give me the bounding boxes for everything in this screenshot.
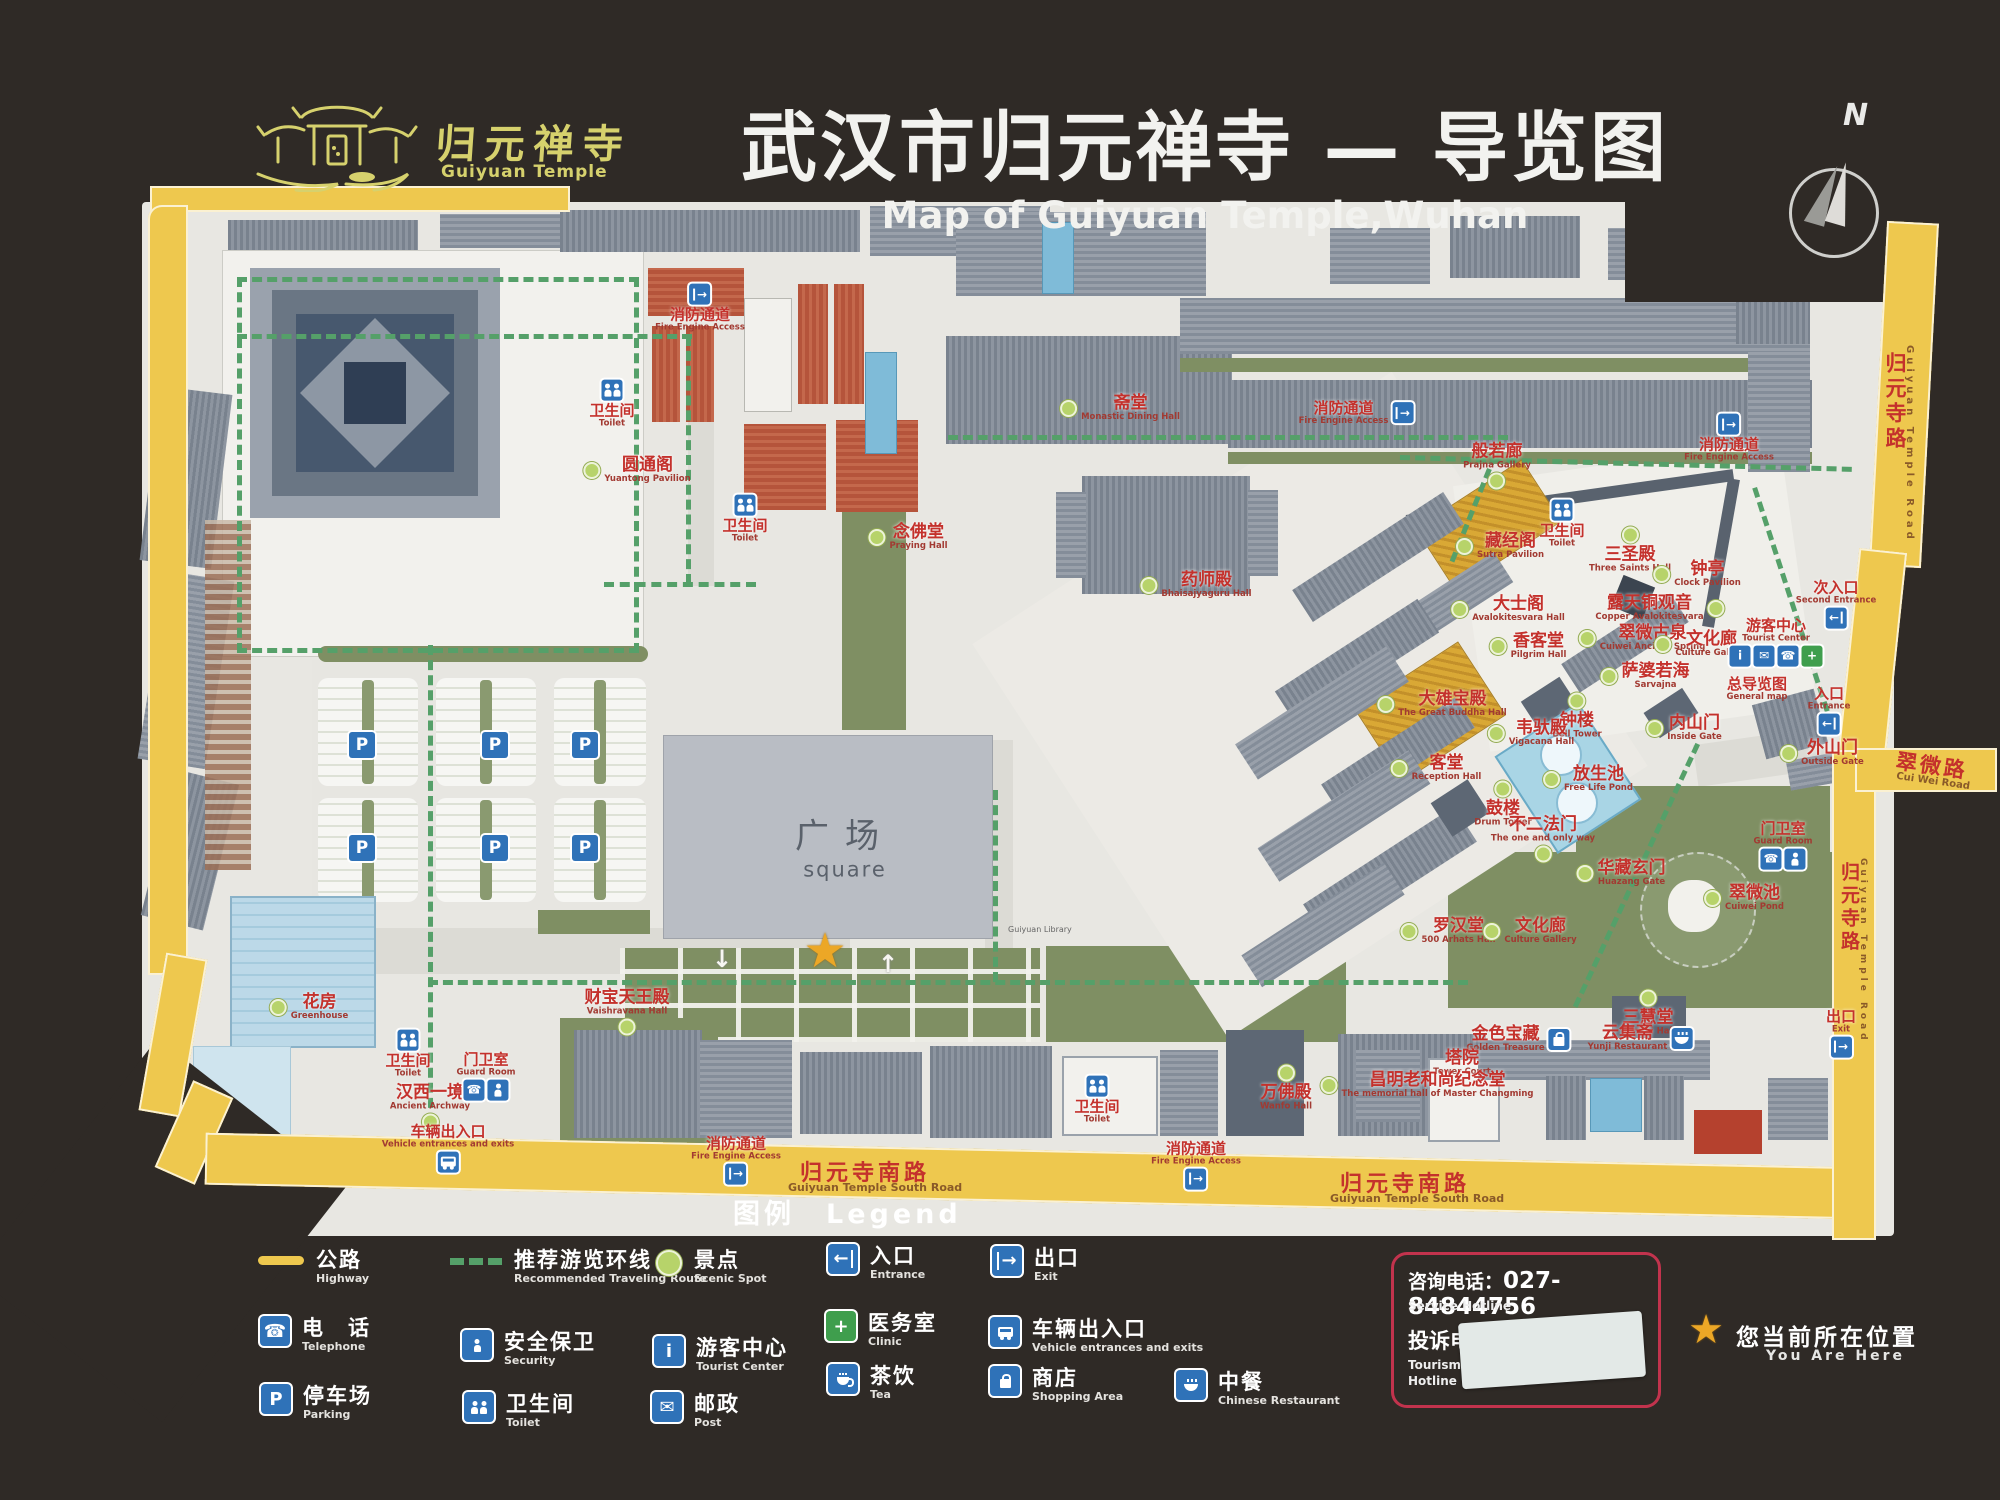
map-shape: 卫生间 (589, 403, 634, 420)
scenic-spot-label: 放生池Free Life Pond (1543, 765, 1633, 793)
parking-sign: P (349, 835, 375, 861)
map-shape: The one and only way (1491, 834, 1595, 843)
map-shape (328, 136, 346, 164)
facility-label: 车辆出入口Vehicle entrances and exits (382, 1124, 514, 1173)
scenic-spot-label: 云集斋Yunji Restaurant (1588, 1024, 1693, 1052)
exit-icon: → (690, 284, 711, 305)
map-shape: 车辆出入口 (410, 1124, 485, 1141)
map-shape: 金色宝藏 (1472, 1025, 1540, 1044)
map-shape: 茶饮 (870, 1364, 916, 1388)
map-shape: 图例 (733, 1199, 795, 1230)
map-shape (293, 108, 300, 117)
map-shape: 邮政Post (694, 1392, 740, 1429)
scenic-spot-dot (1483, 923, 1500, 940)
legend-item: 公路Highway (258, 1248, 369, 1285)
map-building (560, 210, 860, 252)
scenic-spot-dot (1488, 725, 1505, 742)
bus-icon (437, 1151, 458, 1172)
map-shape: Toilet (395, 1069, 421, 1078)
map-shape: 卫生间Toilet (722, 518, 767, 544)
map-shape: i✉☎+ (1730, 645, 1823, 666)
legend-item: 商店Shopping Area (990, 1366, 1123, 1403)
map-shape: ← (833, 1250, 852, 1268)
map-shape: The Great Buddha Hall (1398, 709, 1506, 718)
map-shape: Avalokitesvara Hall (1472, 614, 1565, 623)
scenic-spot-dot (1495, 780, 1512, 797)
map-shape: Sarvajna (1634, 681, 1676, 690)
legend-item: P停车场Parking (261, 1384, 372, 1421)
map-shape (495, 1083, 502, 1096)
scenic-spot-label: 萨婆若海Sarvajna (1601, 662, 1690, 690)
legend-item: 景点Scenic Spot (656, 1248, 766, 1285)
toilet-icon (601, 380, 622, 401)
map-shape: Culture Gallery (1504, 936, 1576, 945)
parking-icon: P (349, 732, 375, 758)
parking-sign: P (349, 732, 375, 758)
scenic-spot-dot (868, 529, 885, 546)
page-title: 武汉市归元禅寺 — 导览图 (740, 86, 1670, 196)
map-shape: square (795, 858, 895, 882)
compass-icon (1789, 168, 1879, 258)
map-building (744, 298, 792, 412)
map-shape: 萨婆若海Sarvajna (1622, 662, 1690, 690)
map-shape: 电 话Telephone (302, 1316, 371, 1353)
you-are-here-zh: 您当前所在位置 (1736, 1318, 1918, 1352)
map-shape: 韦驮殿Vigacana Hall (1509, 719, 1574, 747)
map-building (1694, 1110, 1762, 1154)
facility-label: 门卫室Guard Room☎ (1753, 821, 1812, 870)
entrance-icon: ← (1819, 713, 1840, 734)
road-label-en: Guiyuan Temple South Road (1330, 1192, 1504, 1205)
post-icon: ✉ (1754, 645, 1775, 666)
parking-icon: P (261, 1384, 291, 1414)
map-building (1768, 1078, 1828, 1140)
map-shape: 卫生间 (1074, 1099, 1119, 1116)
map-shape (471, 1401, 487, 1414)
map-building (798, 284, 828, 404)
map-shape: 卫生间Toilet (1539, 523, 1584, 549)
security-icon (462, 1330, 492, 1360)
exit-icon: → (1392, 403, 1413, 424)
map-shape: 安全保卫 (504, 1330, 596, 1354)
map-shape: Guard Room (456, 1068, 515, 1077)
temple-gate-logo-icon (250, 90, 422, 192)
map-shape: 邮政 (694, 1392, 740, 1416)
scenic-spot-label: 斋堂Monastic Dining Hall (1060, 394, 1180, 422)
map-shape: Exit (1832, 1025, 1850, 1034)
map-shape: 外山门 (1807, 739, 1858, 758)
map-shape: 茶饮Tea (870, 1364, 916, 1401)
scenic-spot-label: 罗汉堂500 Arhats Hall (1400, 917, 1495, 945)
map-shape: Second Entrance (1796, 596, 1877, 605)
scenic-spot-dot (1704, 890, 1721, 907)
map-shape: Outside Gate (1801, 758, 1864, 767)
scenic-spot-dot (1451, 601, 1468, 618)
map-shape (601, 380, 622, 401)
map-shape: 消防通道Fire Engine Access (691, 1136, 781, 1162)
map-shape (1184, 1384, 1198, 1391)
scenic-spot-dot (1568, 692, 1585, 709)
map-shape: 万佛殿Wanfo Hall (1260, 1083, 1312, 1111)
map-shape: 放生池 (1573, 765, 1624, 784)
map-shape (1554, 504, 1561, 517)
scenic-spot-label: 露天铜观音Copper Avalokitesvara (1595, 594, 1724, 622)
entrance-icon: ← (828, 1244, 858, 1274)
facility-label: 卫生间Toilet (385, 1030, 430, 1079)
map-shape: 景点Scenic Spot (694, 1248, 766, 1285)
map-building (1546, 1076, 1586, 1140)
map-shape: 车辆出入口Vehicle entrances and exits (1032, 1317, 1203, 1354)
bus-icon (990, 1317, 1020, 1347)
fire-access-label: →消防通道Fire Engine Access (655, 284, 745, 333)
map-shape: 安全保卫Security (504, 1330, 596, 1367)
map-shape: → (693, 288, 707, 300)
map-shape: 般若廊 (1471, 442, 1522, 461)
map-shape: 出口 (1826, 1009, 1856, 1026)
scenic-spot-dot (1277, 1064, 1294, 1081)
you-are-here-star-legend: ★ (1688, 1307, 1724, 1353)
map-shape: → (1396, 407, 1410, 419)
map-shape: → (1834, 1041, 1848, 1053)
map-shape (397, 1030, 418, 1051)
map-shape: 出口Exit (1034, 1246, 1080, 1283)
scenic-spot-dot (1534, 846, 1551, 863)
map-shape: Free Life Pond (1564, 784, 1633, 793)
map-shape: 咨询电话： (1408, 1271, 1503, 1293)
map-shape: Toilet (1084, 1115, 1110, 1124)
map-shape: ← (1825, 607, 1846, 628)
map-shape: 萨婆若海 (1622, 662, 1690, 681)
map-building (652, 326, 680, 422)
phone-icon: ☎ (260, 1316, 290, 1346)
legend-item: 中餐Chinese Restaurant (1176, 1370, 1340, 1407)
facility-label: 卫生间Toilet (589, 380, 634, 429)
map-shape: ☎ (1761, 848, 1806, 869)
map-shape: 入口 (870, 1244, 925, 1268)
map-shape: Tourist Center (696, 1360, 788, 1373)
map-shape (410, 127, 416, 135)
map-shape (480, 1401, 487, 1414)
map-shape: → (1189, 1173, 1203, 1185)
map-shape: Sutra Pavilion (1477, 551, 1544, 560)
map-shape: 次入口 (1813, 580, 1858, 597)
fire-access-label: 消防通道Fire Engine Access→ (1151, 1141, 1241, 1190)
map-shape: Toilet (732, 534, 758, 543)
map-shape: Vaishravana Hall (587, 1007, 668, 1016)
scenic-spot-dot (1646, 720, 1663, 737)
map-shape (266, 127, 304, 134)
map-shape: Reception Hall (1412, 773, 1482, 782)
parking-icon: P (349, 835, 375, 861)
phone-icon: ☎ (464, 1079, 485, 1100)
map-shape: 斋堂Monastic Dining Hall (1081, 394, 1180, 422)
map-shape (437, 1151, 458, 1172)
highway-icon (258, 1256, 304, 1265)
map-shape: Post (694, 1416, 740, 1429)
map-shape: 车辆出入口 (1032, 1317, 1203, 1341)
map-shape (998, 1327, 1013, 1337)
scenic-spot-dot (1654, 636, 1671, 653)
scenic-spot-label: 财宝天王殿Vaishravana Hall (585, 988, 670, 1035)
toilet-icon (1086, 1076, 1107, 1097)
legend-item: →出口Exit (992, 1246, 1080, 1283)
facility-label: 次入口Second Entrance← (1796, 580, 1877, 629)
map-shape: Inside Gate (1667, 733, 1722, 742)
road-right (1832, 750, 1876, 1240)
map-shape: 入口Entrance (870, 1244, 925, 1281)
map-shape (349, 172, 375, 182)
map-shape: Greenhouse (291, 1012, 349, 1021)
map-shape: 次入口Second Entrance (1796, 580, 1877, 606)
map-building (1248, 490, 1278, 576)
map-shape: 华藏玄门 (1598, 859, 1666, 878)
you-are-here-en: You Are Here (1766, 1348, 1905, 1364)
map-shape (1675, 1037, 1689, 1044)
legend-item: 茶饮Tea (828, 1364, 916, 1401)
map-shape: 出口 (1034, 1246, 1080, 1270)
map-shape: 消防通道 (1313, 400, 1373, 417)
map-shape: Security (504, 1354, 596, 1367)
map-shape: 花房 (303, 993, 337, 1012)
map-shape: Entrance (870, 1268, 925, 1281)
scenic-spot-label: 翠微池Cuiwei Pond (1704, 884, 1784, 912)
map-shape: 翠微池 (1729, 884, 1780, 903)
map-shape: 华藏玄门Huazang Gate (1598, 859, 1666, 887)
map-building (228, 220, 418, 250)
map-shape: Parking (303, 1408, 372, 1421)
map-shape: ← (1829, 612, 1843, 624)
map-shape: 昌明老和尚纪念堂 (1369, 1071, 1505, 1090)
exit-icon: → (726, 1163, 747, 1184)
map-shape: 圆通阁Yuantong Pavilion (604, 456, 690, 484)
map-shape: 云集斋Yunji Restaurant (1588, 1024, 1668, 1052)
path-arrow-up: ↑ (878, 950, 898, 978)
parking-sign: P (482, 732, 508, 758)
map-shape: 卫生间 (722, 518, 767, 535)
map-shape (302, 107, 372, 117)
map-shape: 停车场Parking (303, 1384, 372, 1421)
map-shape (400, 1034, 416, 1047)
scenic-spot-dot (1060, 400, 1077, 417)
map-shape: 广场 (795, 809, 895, 858)
scenic-spot-dot (1321, 1077, 1338, 1094)
map-shape (734, 495, 755, 516)
map-shape: Toilet (1549, 539, 1575, 548)
map-shape: 总导览图 (1727, 676, 1787, 693)
map-shape (1089, 1080, 1105, 1093)
map-shape: 消防通道 (706, 1136, 766, 1153)
scenic-spot-dot (1140, 577, 1157, 594)
map-shape: 医务室Clinic (868, 1311, 937, 1348)
facility-label: 出口Exit→ (1826, 1009, 1856, 1058)
map-shape: 念佛堂 (893, 523, 944, 542)
map-shape: 藏经阁Sutra Pavilion (1477, 532, 1544, 560)
map-shape: 卫生间Toilet (1074, 1099, 1119, 1125)
map-shape: Highway (316, 1272, 369, 1285)
fire-access-label: 消防通道Fire Engine Access→ (691, 1136, 781, 1185)
map-shape: Scenic Spot (694, 1272, 766, 1285)
facility-label: 总导览图General map (1726, 676, 1787, 702)
map-shape: 入口 (1814, 686, 1844, 703)
legend-item: ☎电 话Telephone (260, 1316, 371, 1353)
scenic-spot-dot (1400, 923, 1417, 940)
path-arrow-down: ↓ (712, 945, 732, 973)
scenic-spot-dot (1601, 668, 1618, 685)
map-building (865, 352, 897, 454)
map-shape: 云集斋 (1602, 1024, 1653, 1043)
map-shape: Cuiwei Pond (1725, 903, 1784, 912)
map-shape (1554, 504, 1570, 517)
map-shape: Exit (1034, 1270, 1080, 1283)
scenic-spot-label: 不二法门The one and only way (1491, 815, 1595, 862)
map-building (700, 1040, 792, 1138)
scenic-spot-dot (270, 999, 287, 1016)
scenic-spot-label: 万佛殿Wanfo Hall (1260, 1064, 1312, 1111)
map-shape: ← (1822, 718, 1836, 730)
map-shape (613, 384, 620, 397)
map-shape (258, 174, 338, 191)
map-shape: The memorial hall of Master Changming (1342, 1090, 1534, 1099)
road-highway (148, 205, 188, 975)
map-shape (1792, 852, 1799, 865)
map-shape (258, 127, 264, 135)
map-shape: 罗汉堂 (1433, 917, 1484, 936)
map-shape: 药师殿 (1181, 571, 1232, 590)
map-shape (837, 1377, 849, 1385)
scenic-spot-label: 华藏玄门Huazang Gate (1577, 859, 1666, 887)
compass-n-label: N (1843, 98, 1868, 133)
toilet-icon (464, 1392, 494, 1422)
map-shape: 门卫室Guard Room (456, 1052, 515, 1078)
scenic-spot-dot (1653, 566, 1670, 583)
fire-access-label: →消防通道Fire Engine Access (1684, 414, 1774, 463)
map-shape: 消防通道Fire Engine Access (1151, 1141, 1241, 1167)
map-shape: Yunji Restaurant (1588, 1043, 1668, 1052)
scenic-spot-dot (1488, 473, 1505, 490)
scenic-spot-dot (1543, 771, 1560, 788)
scenic-spot-dot (1577, 865, 1594, 882)
scenic-spot-dot (1456, 538, 1473, 555)
map-shape: Vehicle entrances and exits (382, 1140, 514, 1149)
scenic-spot-label: 文化廊Culture Gallery (1483, 917, 1576, 945)
phone-icon: ☎ (1761, 848, 1782, 869)
map-shape (1098, 1080, 1105, 1093)
map-shape: 外山门Outside Gate (1801, 739, 1864, 767)
map-shape: 三圣殿 (1605, 545, 1656, 564)
map-shape: 露天铜观音Copper Avalokitesvara (1595, 594, 1703, 622)
map-shape: 钟亭 (1691, 560, 1725, 579)
map-shape: ← (1819, 713, 1840, 734)
toilet-icon (1551, 500, 1572, 521)
scenic-spot-label: 客堂Reception Hall (1391, 754, 1482, 782)
map-shape: → (1830, 1036, 1851, 1057)
restaurant-icon (1671, 1028, 1692, 1049)
page-subtitle: Map of Guiyuan Temple,Wuhan (860, 194, 1550, 237)
map-shape: 不二法门 (1509, 815, 1577, 834)
parking-sign: P (572, 835, 598, 861)
scenic-spot-label: 昌明老和尚纪念堂The memorial hall of Master Chan… (1321, 1071, 1534, 1099)
scenic-spot-label: 药师殿Bhaisajyaguru Hall (1140, 571, 1251, 599)
map-shape: Tea (870, 1388, 916, 1401)
logo-name-en: Guiyuan Temple (441, 162, 608, 182)
map-shape: 放生池Free Life Pond (1564, 765, 1633, 793)
map-shape: 卫生间Toilet (589, 403, 634, 429)
map-shape: 客堂 (1429, 754, 1463, 773)
map-shape: 韦驮殿 (1516, 719, 1567, 738)
map-shape: Telephone (302, 1340, 371, 1353)
route-icon (450, 1258, 502, 1265)
map-shape (1089, 1080, 1096, 1093)
map-shape: 卫生间Toilet (385, 1053, 430, 1079)
security-icon (488, 1079, 509, 1100)
security-icon (1785, 848, 1806, 869)
facility-label: 卫生间Toilet (722, 495, 767, 544)
map-shape: Clinic (868, 1335, 937, 1348)
map-shape (604, 384, 620, 397)
scenic-spot-dot (1708, 600, 1725, 617)
map-shape: → (729, 1168, 743, 1180)
route-dash (993, 790, 998, 982)
map-shape: 总导览图General map (1726, 676, 1787, 702)
scenic-spot-dot (1579, 630, 1596, 647)
route-dash (237, 334, 692, 339)
scenic-spot-label: 花房Greenhouse (270, 993, 349, 1021)
parking-icon: P (482, 835, 508, 861)
map-shape: General map (1726, 693, 1787, 702)
map-shape: 消防通道 (1166, 1141, 1226, 1158)
parking-icon: P (572, 835, 598, 861)
map-shape (332, 146, 336, 150)
map-shape (737, 499, 744, 512)
fire-access-label: 消防通道Fire Engine Access→ (1299, 400, 1414, 426)
scenic-spot-dot (583, 462, 600, 479)
map-shape: 入口Entrance (1808, 686, 1851, 712)
map-shape: Hotline (1408, 1374, 1457, 1388)
map-shape: 香客堂 (1513, 632, 1564, 651)
map-shape (258, 107, 416, 191)
map-shape: 消防通道Fire Engine Access (1299, 400, 1389, 426)
scenic-spot-dot (1780, 745, 1797, 762)
legend-title: 图例 Legend (733, 1192, 962, 1231)
map-shape: 电 话 (302, 1316, 371, 1340)
map-shape: 斋堂 (1113, 394, 1147, 413)
map-shape: Fire Engine Access (1299, 417, 1389, 426)
map-building (574, 1030, 702, 1138)
road-label-en: Guiyuan Temple South Road (788, 1181, 962, 1194)
map-shape: Fire Engine Access (655, 323, 745, 332)
info-icon: i (654, 1336, 684, 1366)
map-shape: Legend (826, 1199, 962, 1230)
map-shape: 商店 (1032, 1366, 1123, 1390)
map-shape: Guard Room (1753, 837, 1812, 846)
scenic-spot-dot (1391, 760, 1408, 777)
map-shape: 中餐 (1218, 1370, 1340, 1394)
legend-item: +医务室Clinic (826, 1311, 937, 1348)
map-shape: 内山门 (1669, 714, 1720, 733)
legend-item: 安全保卫Security (462, 1330, 596, 1367)
map-shape: Clock Pavilion (1674, 579, 1741, 588)
map-building (1160, 1050, 1218, 1136)
restaurant-icon (1176, 1370, 1206, 1400)
clinic-icon: + (1802, 645, 1823, 666)
map-shape: 财宝天王殿Vaishravana Hall (585, 988, 670, 1016)
map-building (1644, 1076, 1684, 1140)
parking-icon: P (572, 732, 598, 758)
map-shape (1554, 1037, 1565, 1046)
map-shape: → (997, 1252, 1016, 1270)
legend-item: 车辆出入口Vehicle entrances and exits (990, 1317, 1203, 1354)
post-icon: ✉ (652, 1392, 682, 1422)
